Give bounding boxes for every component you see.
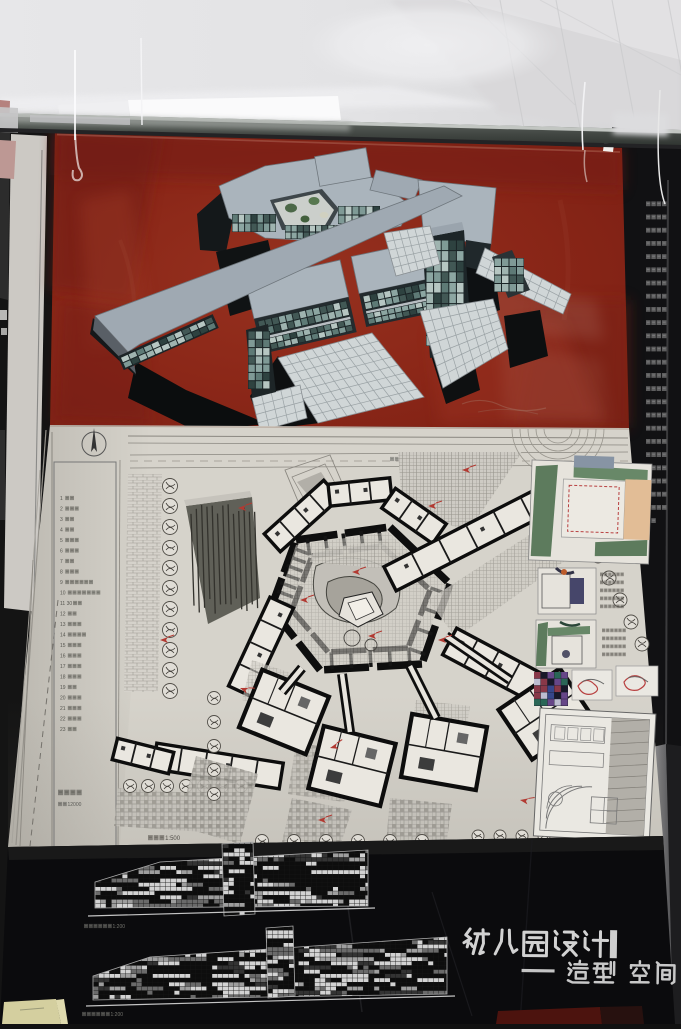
svg-text:9: 9 bbox=[60, 580, 63, 586]
svg-text:11 30: 11 30 bbox=[60, 601, 72, 607]
svg-text:23: 23 bbox=[60, 727, 66, 733]
svg-text:12000: 12000 bbox=[68, 802, 82, 808]
svg-text:4: 4 bbox=[60, 528, 63, 534]
svg-text:1:500: 1:500 bbox=[165, 836, 181, 842]
svg-text:20: 20 bbox=[60, 696, 66, 702]
svg-text:1: 1 bbox=[60, 496, 63, 502]
svg-text:3: 3 bbox=[60, 517, 63, 523]
svg-text:13: 13 bbox=[60, 622, 66, 628]
svg-text:7: 7 bbox=[60, 559, 63, 565]
svg-text:10: 10 bbox=[60, 591, 66, 597]
svg-text:6: 6 bbox=[60, 549, 63, 555]
svg-text:22: 22 bbox=[60, 717, 66, 723]
svg-text:19: 19 bbox=[60, 685, 66, 691]
svg-text:5: 5 bbox=[60, 538, 63, 544]
svg-text:16: 16 bbox=[60, 654, 66, 660]
svg-text:21: 21 bbox=[60, 706, 66, 712]
svg-text:1:200: 1:200 bbox=[113, 924, 126, 930]
svg-text:12: 12 bbox=[60, 612, 66, 618]
svg-text:14: 14 bbox=[60, 633, 66, 639]
svg-text:17: 17 bbox=[60, 664, 66, 670]
svg-text:15: 15 bbox=[60, 643, 66, 649]
svg-text:1:200: 1:200 bbox=[111, 1012, 124, 1018]
svg-text:8: 8 bbox=[60, 570, 63, 576]
svg-text:2: 2 bbox=[60, 507, 63, 513]
svg-text:18: 18 bbox=[60, 675, 66, 681]
